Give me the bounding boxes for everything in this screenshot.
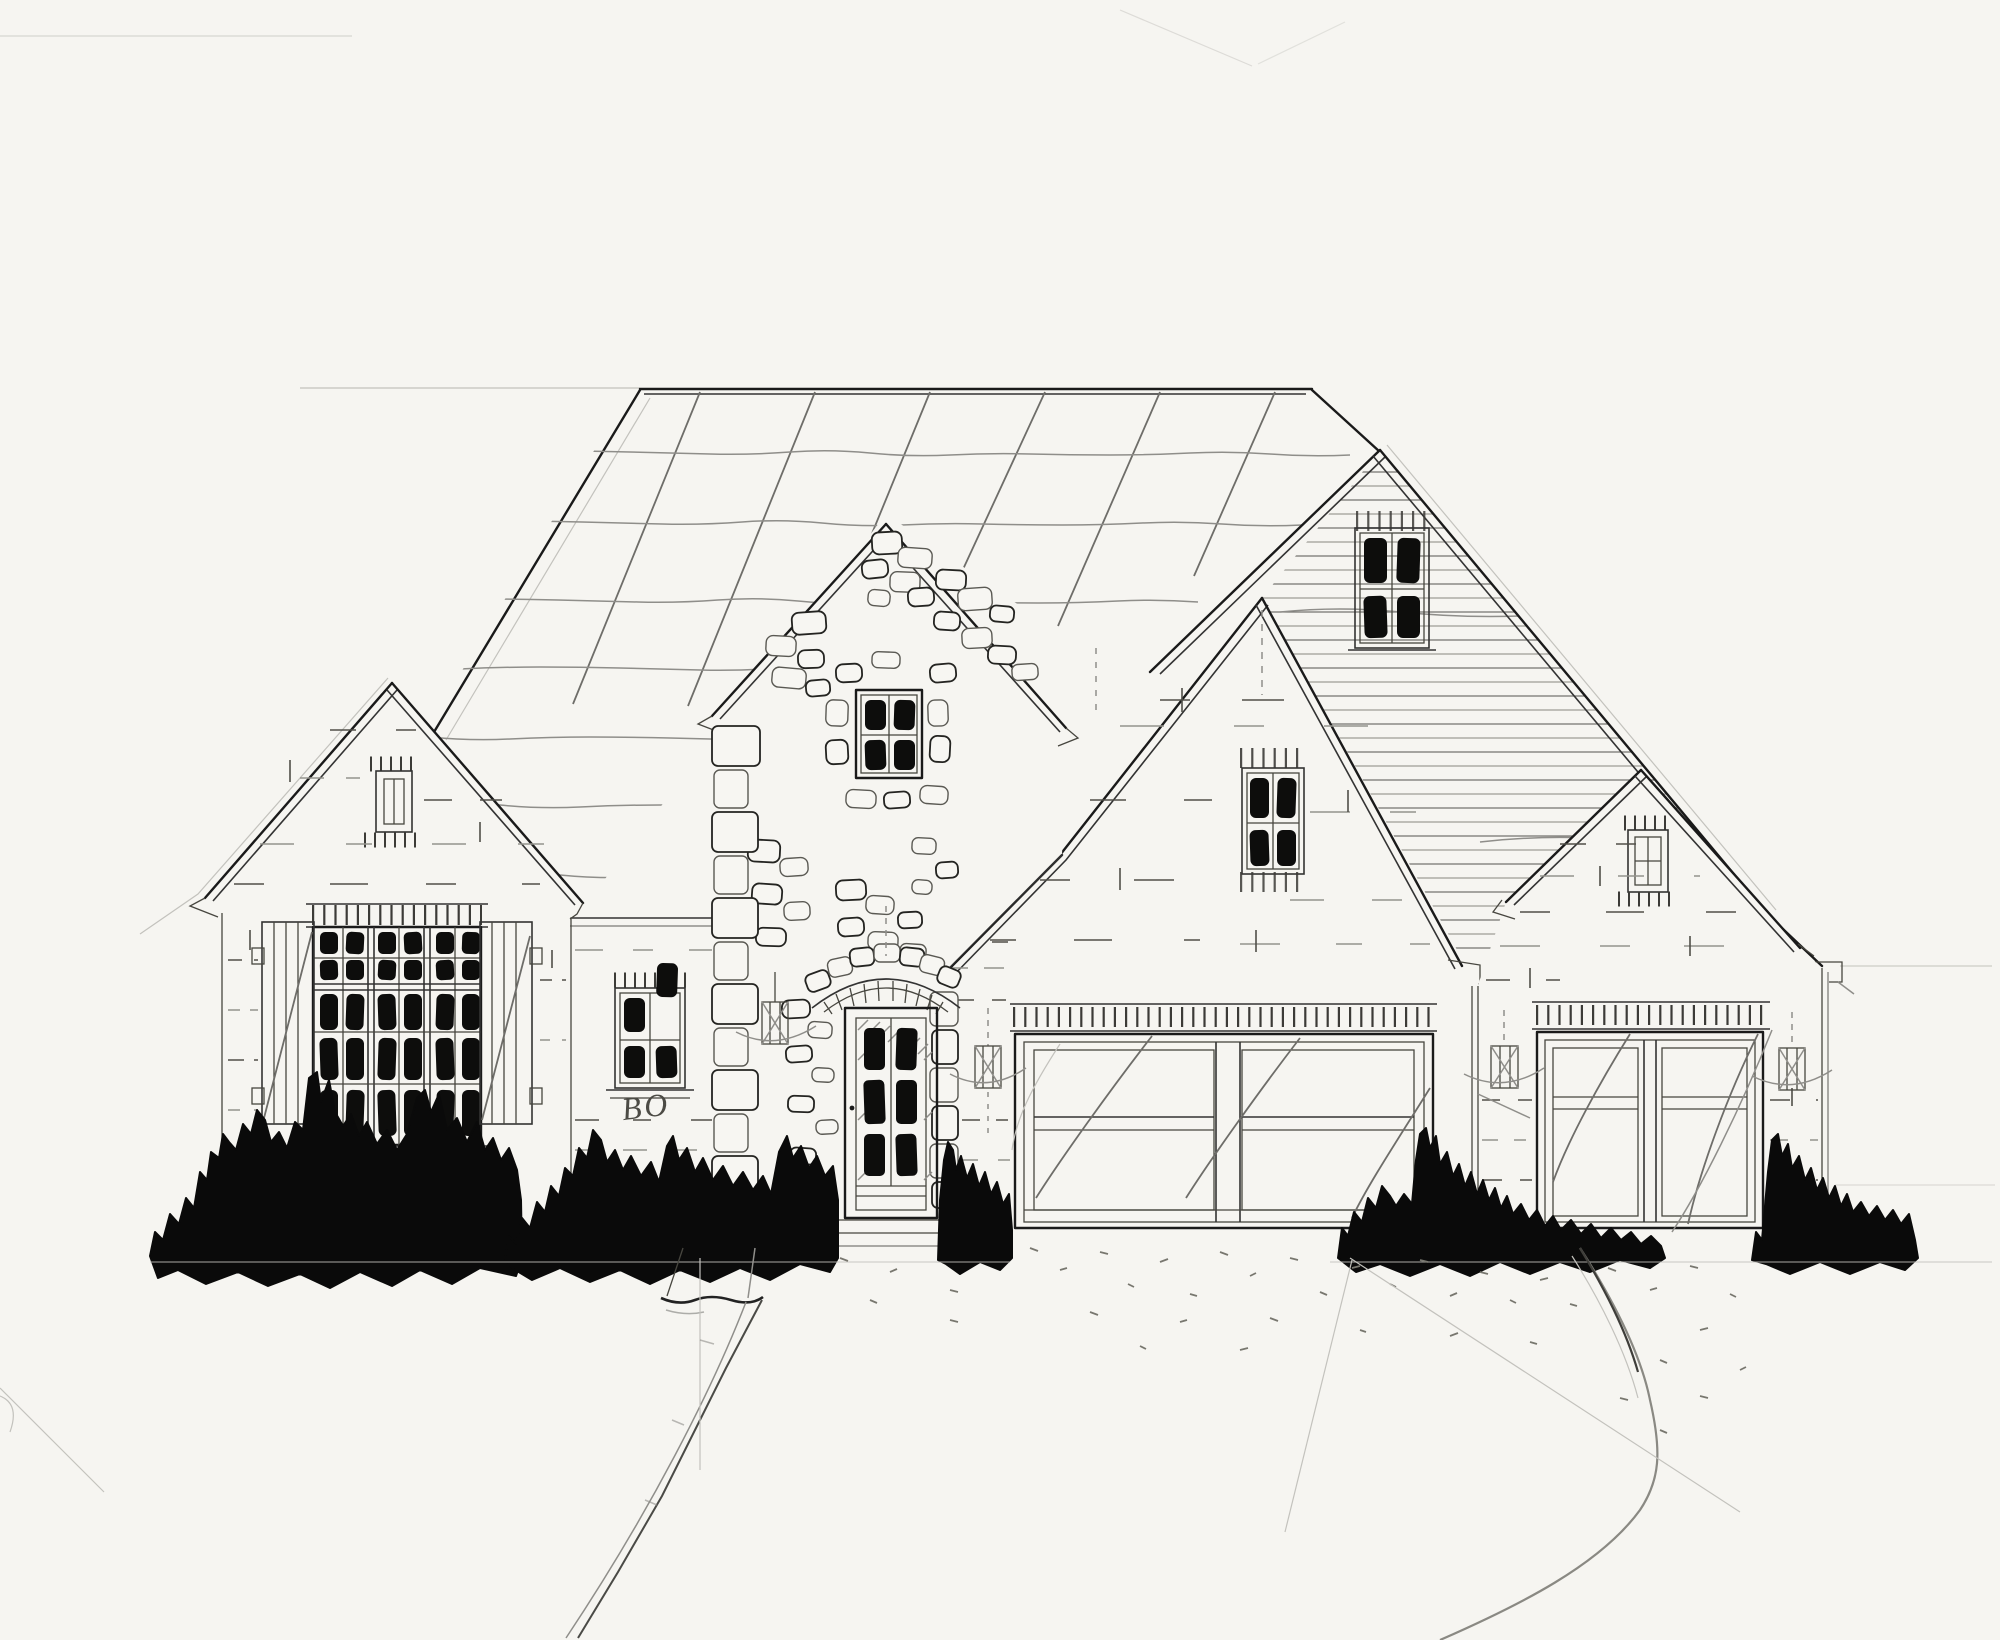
annotation-text: BO: [620, 1085, 673, 1127]
house-elevation-drawing: BO: [0, 0, 2000, 1640]
elevation-sketch-canvas: BO: [0, 0, 2000, 1640]
annotation: BO: [620, 1085, 673, 1127]
